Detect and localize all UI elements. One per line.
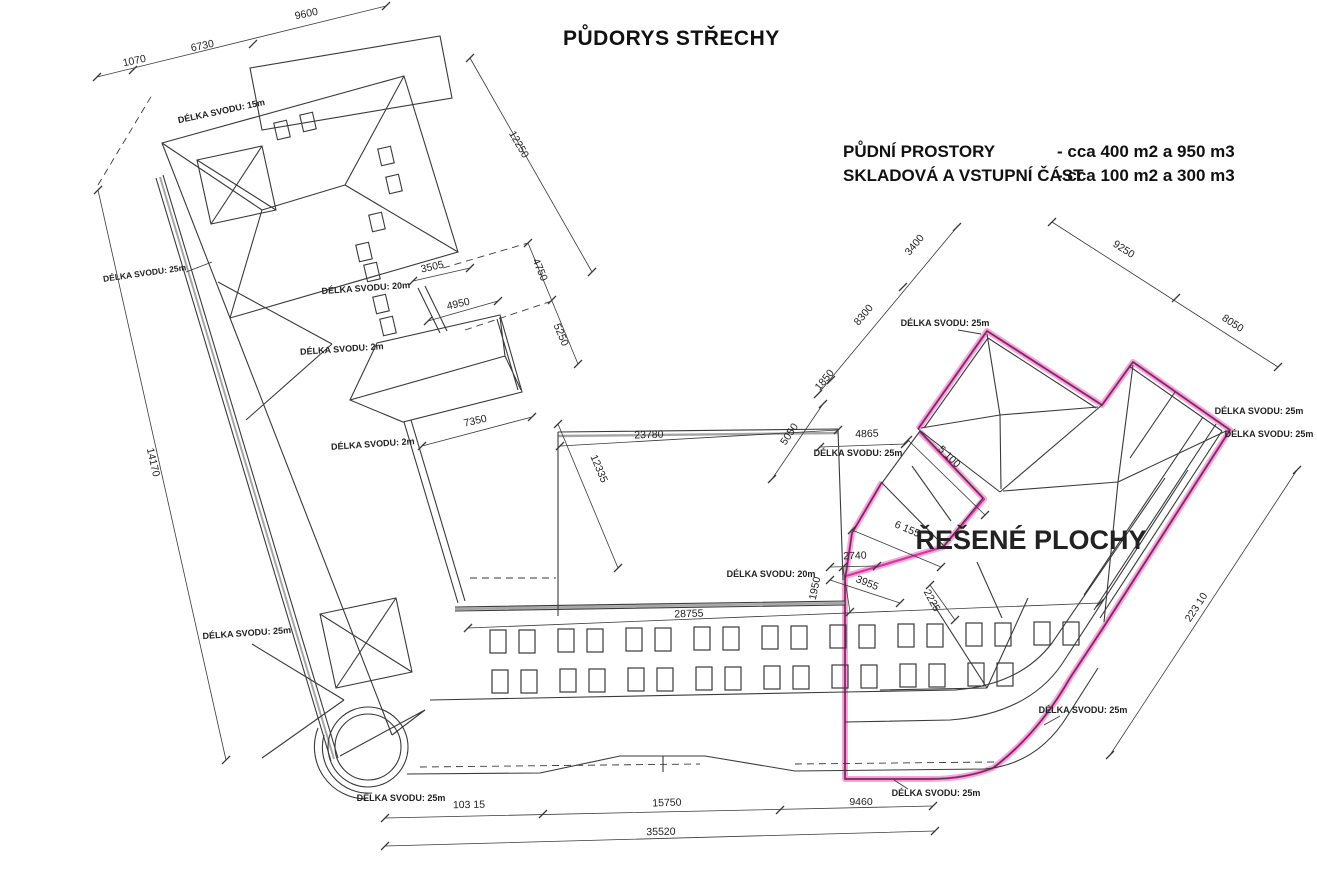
note-line-2-value: - cca 100 m2 a 300 m3: [1057, 166, 1235, 185]
svod-label-20m-court: DÉLKA SVODU: 20m: [727, 569, 816, 579]
dim-28755: 28755: [674, 607, 704, 620]
dim-12250: 12250: [506, 129, 531, 160]
dim-6730: 6730: [190, 38, 215, 55]
dim-4865: 4865: [855, 428, 879, 441]
dim-1070: 1070: [122, 53, 147, 70]
dim-3400: 3400: [903, 232, 927, 258]
svod-label-25m-lowerleft: DÉLKA SVODU: 25m: [202, 625, 291, 641]
page-title: PŮDORYS STŘECHY: [563, 27, 780, 51]
dim-15750: 15750: [652, 796, 682, 809]
svod-label-25m-nw: DÉLKA SVODU: 25m: [901, 318, 990, 328]
dim-5250: 5250: [551, 322, 571, 348]
dim-8300: 8300: [852, 302, 876, 328]
dimension-ticks: [93, 2, 1301, 850]
dim-9460: 9460: [849, 796, 873, 808]
roof-windows-topleft: [274, 112, 402, 335]
svod-label-25m-right-1: DÉLKA SVODU: 25m: [1215, 406, 1304, 416]
svod-label-25m-curve: DÉLKA SVODU: 25m: [1039, 705, 1128, 715]
dim-10315: 103 15: [453, 799, 485, 812]
dim-14170: 14170: [144, 447, 162, 478]
area-title: ŘEŠENÉ PLOCHY: [915, 524, 1146, 555]
dim-8050: 8050: [1220, 312, 1246, 335]
dim-35520: 35520: [646, 826, 676, 839]
area-notes: PŮDNÍ PROSTORY- cca 400 m2 a 950 m3 SKLA…: [843, 140, 1235, 188]
dim-1850: 1850: [813, 367, 837, 393]
eave-shading: [160, 177, 845, 759]
svod-label-25m-right-2: DÉLKA SVODU: 25m: [1225, 429, 1314, 439]
dim-9250: 9250: [1111, 238, 1137, 261]
note-line-2: SKLADOVÁ A VSTUPNÍ ČÁST- cca 100 m2 a 30…: [843, 164, 1235, 188]
dim-2740: 2740: [843, 550, 867, 563]
svod-label-2m-lower: DÉLKA SVODU: 2m: [331, 436, 415, 452]
roof-windows-bottom-wing: [490, 622, 1079, 693]
note-line-1: PŮDNÍ PROSTORY- cca 400 m2 a 950 m3: [843, 140, 1235, 164]
dim-7350: 7350: [463, 413, 489, 430]
highlighted-roof-edges: [845, 331, 1230, 779]
dim-9600: 9600: [294, 6, 319, 23]
note-line-2-label: SKLADOVÁ A VSTUPNÍ ČÁST: [843, 164, 1057, 188]
note-line-1-value: - cca 400 m2 a 950 m3: [1057, 142, 1235, 161]
roof-plan-page: 1070673096001225014170350549504750525073…: [0, 0, 1317, 869]
note-line-1-label: PŮDNÍ PROSTORY: [843, 140, 1057, 164]
dim-23780: 23780: [634, 428, 664, 441]
dim-4750: 4750: [530, 257, 550, 283]
dim-1950: 1950: [807, 576, 824, 601]
dim-22310: 223 10: [1183, 591, 1211, 625]
dim-3955: 3955: [854, 573, 880, 593]
svod-label-15m: DÉLKA SVODU: 15m: [177, 97, 266, 125]
svod-label-25m-bottom-left: DÉLKA SVODU: 25m: [357, 793, 446, 803]
svod-label-20m-neck: DÉLKA SVODU: 20m: [321, 280, 410, 296]
site-plan-svg: 1070673096001225014170350549504750525073…: [0, 0, 1317, 869]
dimension-lines: [93, 2, 1301, 850]
dimension-labels: 1070673096001225014170350549504750525073…: [102, 6, 1313, 839]
dim-3505: 3505: [420, 259, 446, 276]
svod-label-25m-bottom-mid: DÉLKA SVODU: 25m: [892, 788, 981, 798]
dim-12335: 12335: [588, 453, 611, 485]
svod-label-25m-west: DÉLKA SVODU: 25m: [814, 448, 903, 458]
